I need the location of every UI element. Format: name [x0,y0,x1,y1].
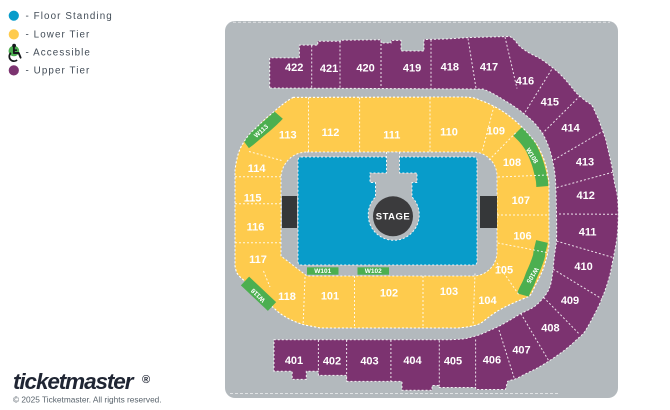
svg-text:© 2025 Ticketmaster. All right: © 2025 Ticketmaster. All rights reserved… [13,395,162,405]
svg-text:406: 406 [483,355,501,367]
svg-text:104: 104 [478,295,497,307]
svg-text:STAGE: STAGE [376,211,411,222]
svg-text:422: 422 [285,62,303,74]
svg-text:412: 412 [577,190,595,202]
svg-text:106: 106 [513,230,531,242]
svg-text:405: 405 [444,356,462,368]
svg-text:- Lower Tier: - Lower Tier [26,30,91,41]
svg-text:414: 414 [561,122,580,134]
svg-text:413: 413 [576,157,594,169]
svg-text:415: 415 [541,97,559,109]
svg-text:419: 419 [403,62,421,74]
svg-text:112: 112 [322,127,340,139]
svg-text:- Upper Tier: - Upper Tier [26,66,91,77]
svg-text:404: 404 [403,355,422,367]
svg-text:103: 103 [440,286,458,298]
svg-text:W101: W101 [314,268,331,275]
svg-text:107: 107 [512,195,530,207]
svg-text:401: 401 [285,355,303,367]
svg-text:407: 407 [512,344,530,356]
svg-text:116: 116 [247,222,265,234]
svg-text:105: 105 [495,265,513,277]
svg-text:113: 113 [279,130,297,142]
svg-text:411: 411 [579,227,597,239]
svg-text:110: 110 [440,127,458,139]
svg-text:111: 111 [383,130,400,142]
svg-text:408: 408 [541,323,559,335]
svg-text:- Floor Standing: - Floor Standing [26,11,113,22]
svg-text:115: 115 [244,192,262,204]
svg-text:ticketmaster: ticketmaster [13,369,135,394]
svg-text:410: 410 [574,261,592,273]
svg-text:114: 114 [248,163,267,175]
svg-text:W102: W102 [365,268,382,275]
svg-text:118: 118 [278,291,296,303]
svg-text:409: 409 [561,295,579,307]
svg-text:®: ® [142,374,150,386]
svg-text:402: 402 [323,356,341,368]
svg-text:417: 417 [480,61,498,73]
svg-text:109: 109 [487,126,505,138]
svg-text:102: 102 [380,287,398,299]
svg-text:418: 418 [441,62,459,74]
svg-text:403: 403 [360,356,378,368]
svg-text:- Accessible: - Accessible [26,47,91,58]
svg-text:108: 108 [503,157,521,169]
svg-text:101: 101 [321,291,339,303]
svg-text:117: 117 [249,254,267,266]
svg-text:421: 421 [320,63,338,75]
svg-text:416: 416 [516,76,534,88]
svg-text:420: 420 [356,62,374,74]
